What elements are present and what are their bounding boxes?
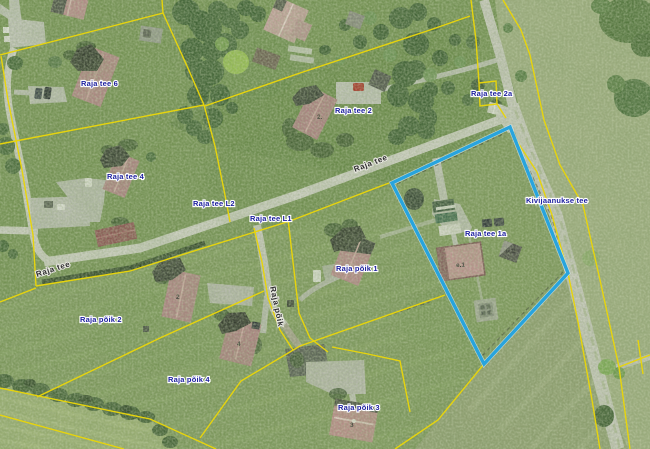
svg-text:Raja tee 6: Raja tee 6 (81, 79, 118, 88)
svg-text:Raja tee L2: Raja tee L2 (193, 199, 235, 208)
svg-text:Raja põik 3: Raja põik 3 (338, 403, 380, 412)
svg-text:Raja tee 1a: Raja tee 1a (465, 229, 507, 238)
svg-text:Raja tee 2: Raja tee 2 (335, 106, 372, 115)
svg-text:Raja tee 4: Raja tee 4 (107, 172, 145, 181)
svg-text:Raja põik 1: Raja põik 1 (336, 264, 378, 273)
svg-text:Raja tee L1: Raja tee L1 (250, 214, 292, 223)
svg-text:Raja põik 4: Raja põik 4 (168, 375, 210, 384)
svg-text:Raja tee 2a: Raja tee 2a (471, 89, 513, 98)
svg-text:Kivijaanukse tee: Kivijaanukse tee (526, 196, 588, 205)
svg-text:Raja põik 2: Raja põik 2 (80, 315, 122, 324)
